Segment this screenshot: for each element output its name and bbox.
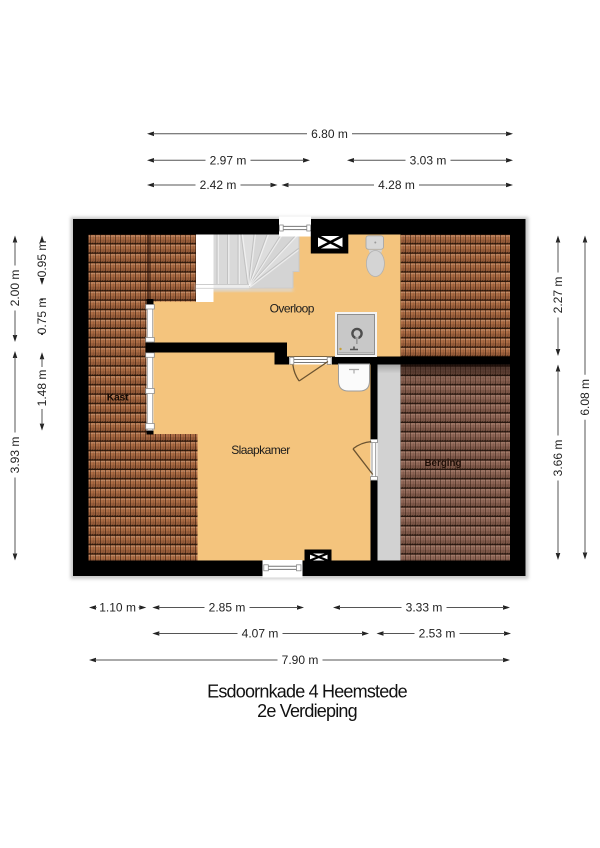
svg-text:3.03 m: 3.03 m [410,154,447,168]
svg-text:2.85 m: 2.85 m [209,601,246,615]
svg-text:7.90 m: 7.90 m [282,653,319,667]
svg-text:Kast: Kast [107,392,129,404]
svg-text:1.10 m: 1.10 m [99,601,136,615]
svg-text:6.08 m: 6.08 m [578,379,592,416]
svg-text:2e Verdieping: 2e Verdieping [257,701,357,721]
svg-text:2.97 m: 2.97 m [210,154,247,168]
svg-text:2.42 m: 2.42 m [200,178,237,192]
svg-text:3.66 m: 3.66 m [551,440,565,477]
svg-text:Overloop: Overloop [270,302,315,316]
svg-text:0.95 m: 0.95 m [35,241,49,278]
svg-text:1.48 m: 1.48 m [35,370,49,407]
svg-text:Esdoornkade 4 Heemstede: Esdoornkade 4 Heemstede [207,682,408,702]
svg-text:2.27 m: 2.27 m [551,277,565,314]
svg-text:0.75 m: 0.75 m [35,298,49,335]
svg-text:2.00 m: 2.00 m [8,270,22,307]
svg-text:3.33 m: 3.33 m [406,601,443,615]
svg-text:3.93 m: 3.93 m [8,437,22,474]
svg-text:4.28 m: 4.28 m [378,178,415,192]
svg-text:6.80 m: 6.80 m [311,127,348,141]
svg-text:2.53 m: 2.53 m [419,627,456,641]
svg-text:Berging: Berging [424,458,461,469]
svg-text:4.07 m: 4.07 m [242,627,279,641]
svg-text:Slaapkamer: Slaapkamer [231,443,290,457]
